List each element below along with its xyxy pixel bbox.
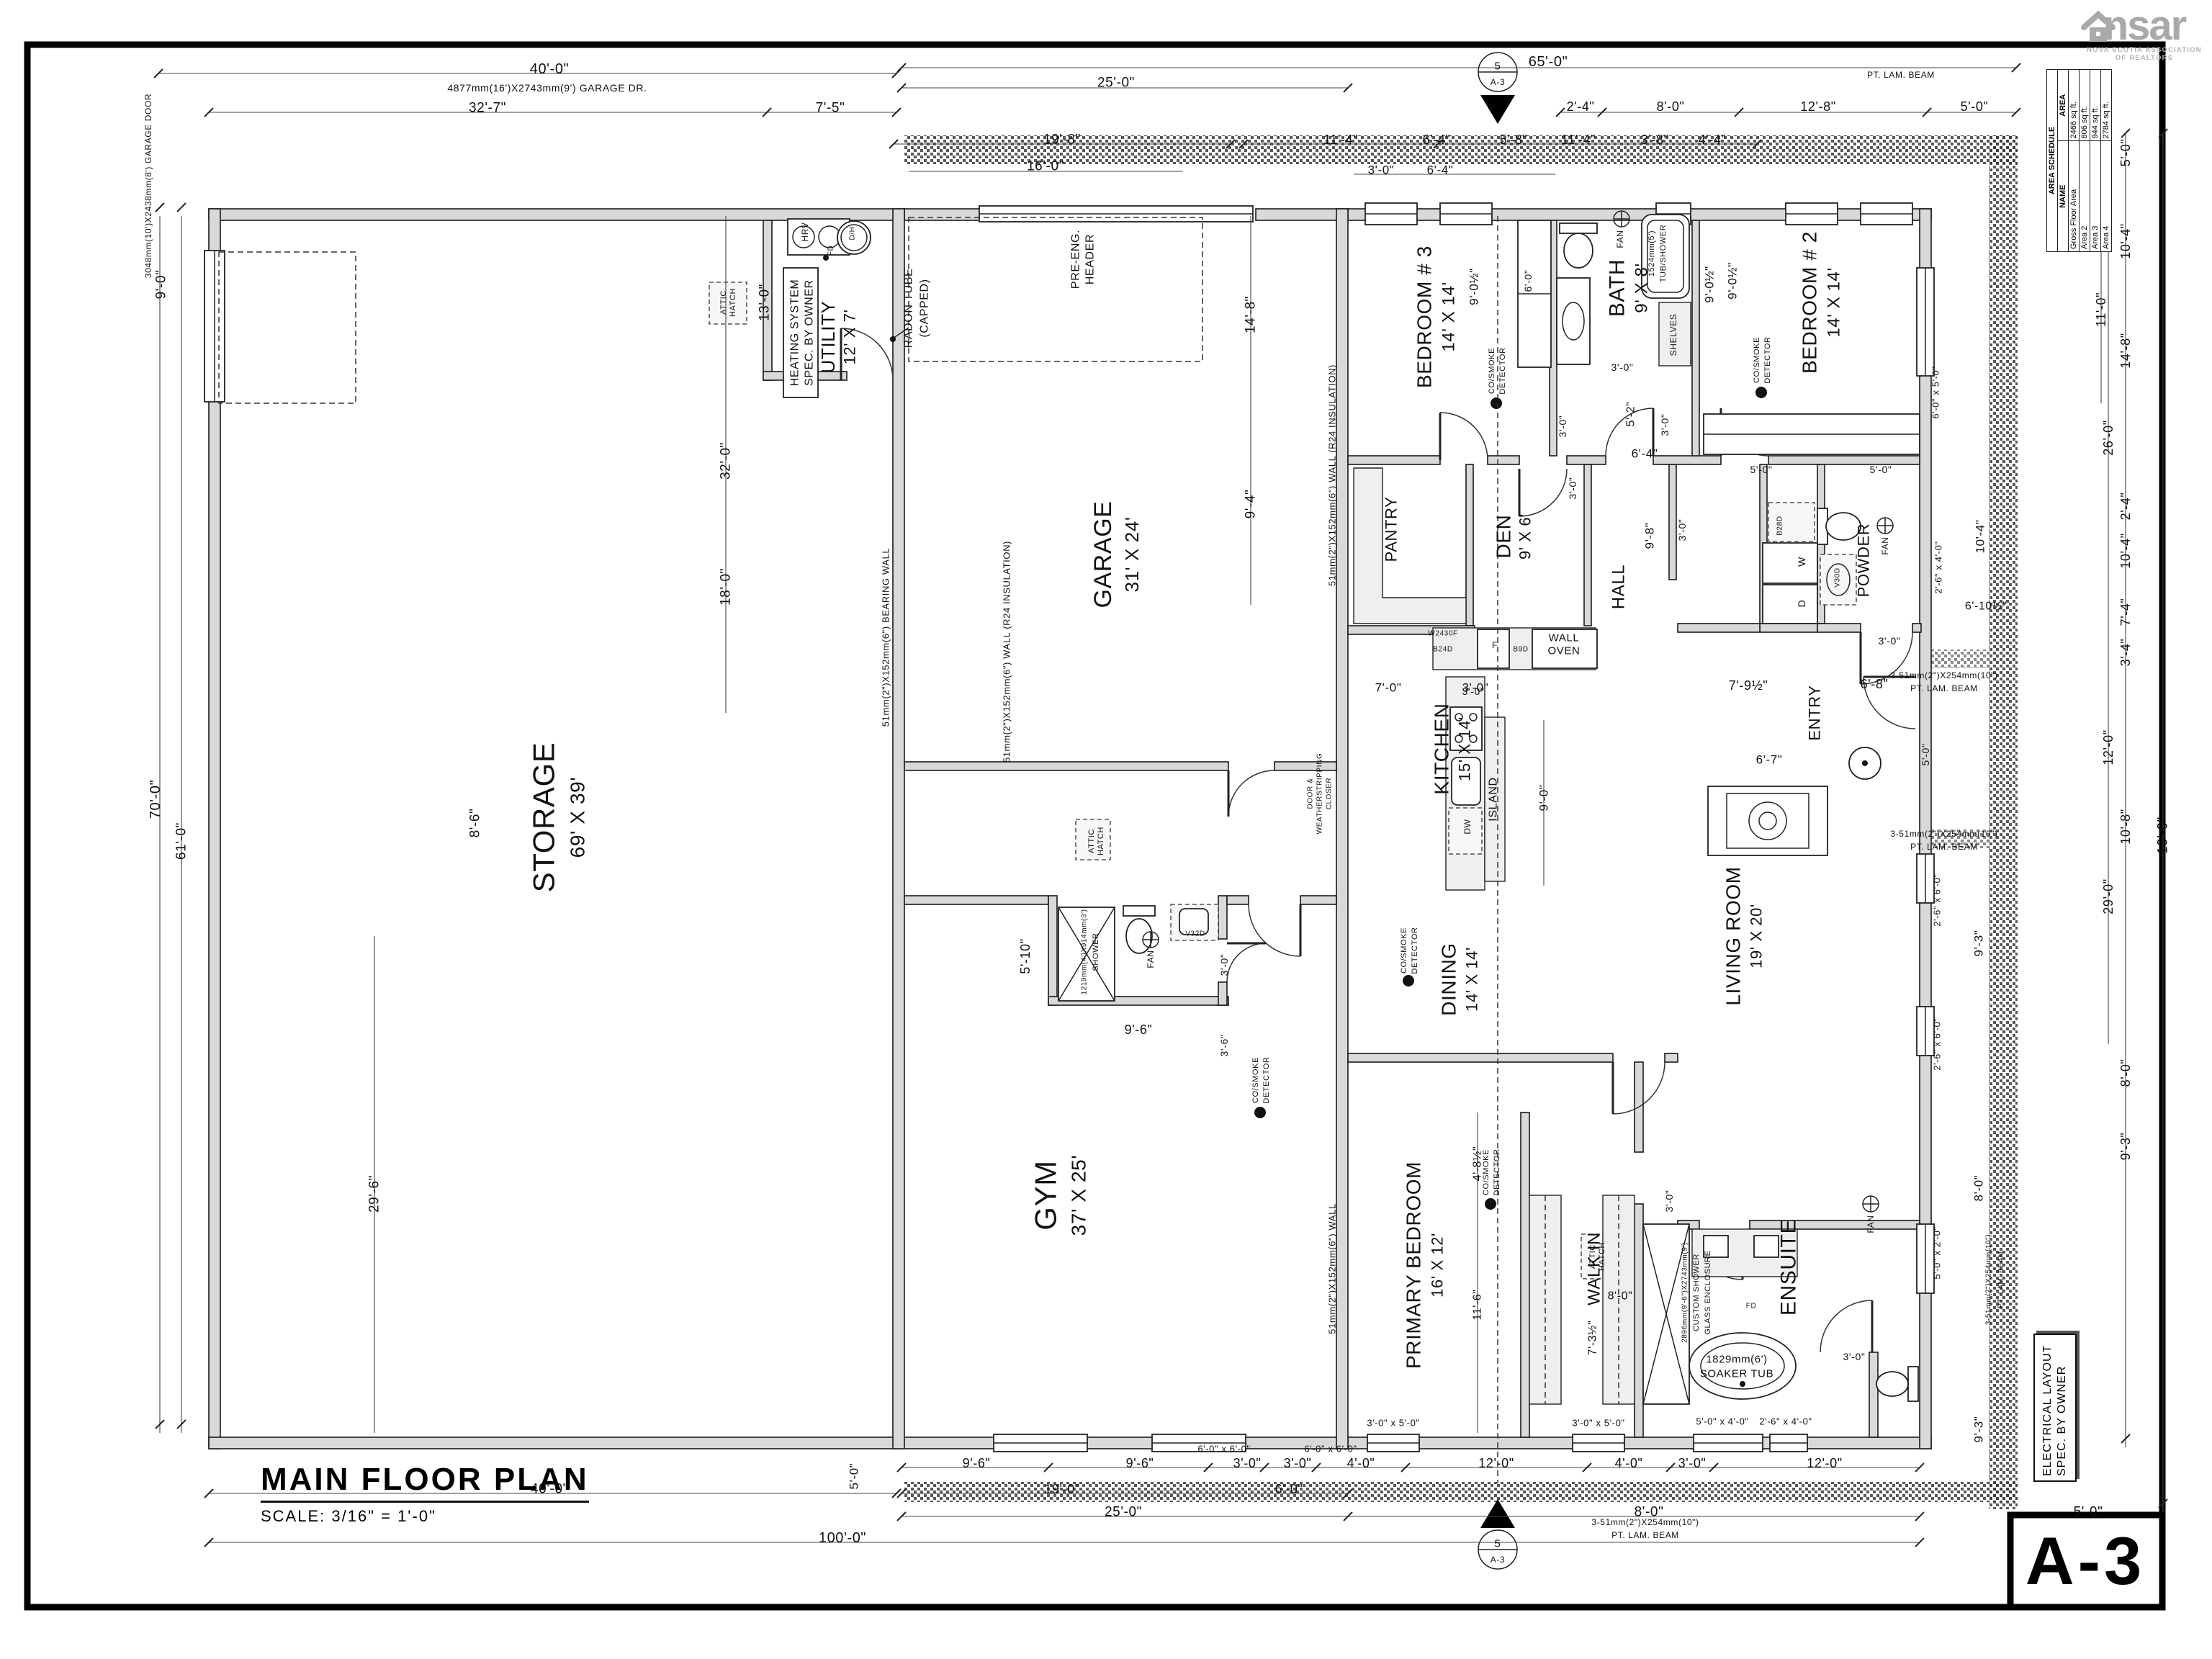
note-beam-e3b: PT. LAM. BEAM bbox=[1997, 1251, 2005, 1308]
plan-text-layer: STORAGE69' X 39'GYM37' X 25'GARAGE31' X … bbox=[143, 54, 2171, 1565]
dim: 13'-0" bbox=[757, 284, 773, 321]
room-kitchen: KITCHEN bbox=[1431, 703, 1453, 794]
note-walloven-2: OVEN bbox=[1548, 645, 1581, 657]
room-gym-size: 37' X 25' bbox=[1068, 1155, 1090, 1236]
note-beam-e3a: 3-51mm(2")X254mm(10") bbox=[1985, 1234, 1993, 1325]
dim: 6'-0" x 6'-0" bbox=[1197, 1444, 1250, 1455]
dim: 3'-0" bbox=[1678, 1456, 1707, 1470]
room-primary: PRIMARY BEDROOM bbox=[1403, 1161, 1425, 1369]
dim: 5'-0" bbox=[848, 1463, 861, 1490]
note-tubshower-2: TUB/SHOWER bbox=[1659, 225, 1668, 283]
pantry-counter bbox=[1354, 468, 1466, 624]
note-wall-r24-a: 51mm(2")X152mm(6") WALL (R24 INSULATION) bbox=[1002, 541, 1012, 763]
dim: 3'-6" bbox=[1218, 1035, 1230, 1057]
room-ensuite: ENSUITE bbox=[1777, 1219, 1801, 1316]
dim: 25'-0" bbox=[1097, 76, 1135, 91]
room-den: DEN bbox=[1493, 515, 1515, 559]
room-garage-size: 31' X 24' bbox=[1121, 517, 1143, 593]
logo-caption-2: OF REALTORS bbox=[2116, 54, 2173, 62]
note-washer: W bbox=[1796, 557, 1807, 567]
dim: 10'-4" bbox=[1974, 520, 1987, 554]
note-walloven-1: WALL bbox=[1549, 632, 1580, 644]
dim: 9'-0½" bbox=[1726, 262, 1740, 300]
dim: 7'-0" bbox=[1375, 681, 1402, 695]
dim: 2'-4" bbox=[2118, 493, 2133, 521]
dim: 29'-6" bbox=[367, 1175, 382, 1213]
note-garage-door: 4877mm(16')X2743mm(9') GARAGE DR. bbox=[447, 82, 647, 94]
room-bedroom2-size: 14' X 14' bbox=[1825, 267, 1844, 337]
dim: 3'-8" bbox=[1641, 132, 1669, 147]
note-dh: D/H bbox=[849, 226, 857, 240]
room-gym: GYM bbox=[1029, 1160, 1063, 1230]
gym-toilet bbox=[1123, 906, 1155, 916]
media-unit bbox=[1708, 786, 1827, 855]
logo-caption-1: NOVA SCOTIA ASSOCIATION bbox=[2087, 46, 2202, 54]
area-schedule-column: AREA bbox=[2058, 70, 2069, 141]
bath-toilet bbox=[1560, 223, 1597, 233]
note-co-gym-2: DETECTOR bbox=[1262, 1056, 1271, 1103]
dim: 3'-0" bbox=[1843, 1351, 1866, 1362]
dim: 5'-0" x 4'-0" bbox=[1696, 1416, 1748, 1427]
dim: 3'-0" x 5'-0" bbox=[1367, 1418, 1419, 1429]
dim: 6'-4" bbox=[1427, 163, 1454, 177]
dim: 6'-0" bbox=[1522, 270, 1534, 292]
note-attic-storage-1: ATTIC bbox=[719, 290, 728, 315]
dim: 5'-0" x 2'-0" bbox=[1932, 1226, 1943, 1279]
note-door-weather-2: WEATHERSTRIPPING bbox=[1316, 753, 1324, 835]
note-co-bed2-1: CO/SMOKE bbox=[1753, 337, 1761, 383]
title-block: MAIN FLOOR PLAN SCALE: 3/16" = 1'-0" bbox=[261, 1462, 589, 1526]
note-bearing-wall: 51mm(2")X152mm(6") BEARING WALL bbox=[881, 548, 891, 727]
dim: 5'-2" bbox=[1625, 402, 1637, 427]
note-radon-1: RADON TUBE bbox=[903, 269, 915, 349]
note-co-bed3-1: CO/SMOKE bbox=[1488, 348, 1496, 394]
note-gym-shower-1: 1219mm(4')X914mm(3') bbox=[1081, 909, 1089, 994]
sheet-number: A-3 bbox=[2010, 1518, 2160, 1604]
dim: 6'-10½" bbox=[1965, 601, 2007, 613]
note-co-bed3-2: DETECTOR bbox=[1498, 347, 1507, 394]
dim: 11'-6" bbox=[1472, 1289, 1484, 1320]
area-schedule-title: AREA SCHEDULE bbox=[2047, 70, 2058, 252]
room-island: ISLAND bbox=[1488, 777, 1500, 821]
logo-text-right: ar bbox=[2149, 9, 2185, 43]
note-wall-r24-b: 51mm(2")X152mm(6") WALL (R24 INSULATION) bbox=[1327, 364, 1338, 586]
dim: 65'-0" bbox=[1529, 54, 1568, 70]
dim: 9'-3" bbox=[1972, 1416, 1986, 1443]
dim: 8'-0" bbox=[1657, 99, 1685, 114]
dim: 9'-6" bbox=[963, 1456, 991, 1470]
dim: 26'-0" bbox=[2101, 420, 2116, 455]
note-co-bed2-2: DETECTOR bbox=[1763, 336, 1772, 383]
note-beam-s1b: PT. LAM. BEAM bbox=[1611, 1530, 1679, 1540]
dim: 5'-0" bbox=[2118, 139, 2133, 167]
note-attic-walkin-1: ATTIC bbox=[1588, 1244, 1597, 1269]
dim: 3'-0" bbox=[1218, 954, 1230, 976]
electrical-note: ELECTRICAL LAYOUT SPEC. BY OWNER bbox=[2033, 1334, 2080, 1482]
room-storage: STORAGE bbox=[527, 742, 561, 893]
dim: 5'-8" bbox=[1500, 132, 1528, 147]
note-beam-e2b: PT. LAM. BEAM bbox=[1910, 842, 1978, 852]
note-shower-glass-2: CUSTOM SHOWER bbox=[1692, 1254, 1701, 1331]
note-cab-b24d: B24D bbox=[1433, 646, 1452, 654]
dim: 100'-0" bbox=[819, 1530, 866, 1546]
dim: 6'-0" bbox=[1275, 1482, 1303, 1496]
note-fan-powder: FAN bbox=[1880, 536, 1890, 554]
dim: 5'-0" bbox=[1961, 99, 1989, 114]
note-beam-top: PT. LAM. BEAM bbox=[1867, 70, 1935, 80]
note-fd-utility: FD bbox=[827, 246, 835, 256]
note-cab-w2430: W2430F bbox=[1428, 630, 1457, 638]
note-soaker-2: SOAKER TUB bbox=[1700, 1368, 1773, 1380]
dim: 4'-0" bbox=[1615, 1456, 1643, 1470]
note-preeng-2: HEADER bbox=[1084, 234, 1097, 284]
dim: 4'-4" bbox=[1699, 132, 1727, 147]
dim: 4'-0" bbox=[1347, 1456, 1375, 1470]
dim: 2'-6" x 6'-0" bbox=[1932, 1017, 1943, 1070]
note-gym-shower-2: SHOWER bbox=[1092, 932, 1100, 971]
dim: 32'-7" bbox=[469, 101, 506, 116]
dim: 8'-6" bbox=[468, 809, 483, 838]
marker-bot-num: 5 bbox=[1495, 1538, 1501, 1550]
dim: 6'-0" x 6'-0" bbox=[1304, 1444, 1357, 1455]
dim: 10'-4" bbox=[2118, 533, 2133, 568]
room-living-size: 19' X 20' bbox=[1748, 904, 1766, 968]
dim: 3'-0" bbox=[1557, 415, 1568, 438]
dim: 3'-0" bbox=[1659, 414, 1671, 436]
note-co-gym-1: CO/SMOKE bbox=[1251, 1057, 1260, 1103]
dim: 10'-4" bbox=[2118, 223, 2133, 258]
note-hrv: HRV bbox=[800, 222, 810, 242]
dim: 8'-0" bbox=[1608, 1290, 1633, 1303]
west-garage-door-zone bbox=[219, 252, 356, 403]
dim: 5'-0" bbox=[1920, 744, 1931, 766]
area-schedule-cell: 806 sq ft. bbox=[2080, 70, 2090, 141]
nsar-logo: ns ar NOVA SCOTIA ASSOCIATION OF REALTOR… bbox=[2080, 9, 2209, 62]
area-schedule-cell: 944 sq ft. bbox=[2090, 70, 2101, 141]
dim: 7'-4" bbox=[2118, 598, 2133, 626]
area-schedule: AREA SCHEDULENAMEAREAGross Floor Area246… bbox=[2046, 69, 2116, 253]
note-fridge: F bbox=[1492, 640, 1498, 650]
note-heating-1: HEATING SYSTEM bbox=[789, 279, 801, 387]
dim: 9'-3" bbox=[1972, 930, 1986, 957]
dim: 12'-8" bbox=[1800, 99, 1835, 114]
pre-eng-header-zone bbox=[909, 217, 1202, 361]
drawing-sheet: { "sheet": { "title": "MAIN FLOOR PLAN",… bbox=[0, 0, 2212, 1659]
area-schedule-cell: Area 3 bbox=[2090, 141, 2101, 252]
dim: 7'-3½" bbox=[1587, 1321, 1599, 1356]
note-preeng-1: PRE-ENG. bbox=[1070, 230, 1082, 289]
note-beam-e1b: PT. LAM. BEAM bbox=[1910, 683, 1978, 693]
dim: 3'-0" x 5'-0" bbox=[1572, 1418, 1624, 1429]
dim: 3'-4" bbox=[2118, 639, 2133, 667]
room-hall: HALL bbox=[1609, 565, 1629, 609]
dim: 11'-0" bbox=[2094, 292, 2108, 327]
dim: 6'-4" bbox=[1632, 447, 1658, 461]
marker-top-sheet: A-3 bbox=[1491, 77, 1505, 87]
dim: 7'-9½" bbox=[1729, 678, 1768, 693]
dim: 10'-0" bbox=[2156, 817, 2171, 854]
dim: 3'-0" bbox=[1233, 1456, 1262, 1470]
area-schedule-cell: Area 4 bbox=[2101, 141, 2112, 252]
dim: 3'-0" bbox=[1663, 1190, 1675, 1213]
dim: 12'-0" bbox=[1478, 1456, 1514, 1470]
dim: 9'-8" bbox=[1643, 523, 1657, 549]
dim: 3'-0" bbox=[1368, 163, 1395, 177]
house-icon bbox=[2080, 9, 2117, 46]
dim: 14'-8" bbox=[2118, 333, 2133, 368]
room-utility: UTILITY bbox=[817, 301, 839, 374]
note-beam-e2a: 3-51mm(2")X254mm(10") bbox=[1890, 829, 1997, 839]
room-bedroom2: BEDROOM # 2 bbox=[1799, 231, 1821, 374]
room-bedroom3-size: 14' X 14' bbox=[1439, 282, 1459, 351]
dim: 25'-0" bbox=[1105, 1505, 1142, 1520]
dim: 3'-0" bbox=[1462, 685, 1485, 697]
note-tubshower-1: 1524mm(5') bbox=[1647, 230, 1656, 276]
note-attic-gym-2: HATCH bbox=[1097, 827, 1105, 855]
area-schedule-row: Area 3944 sq ft. bbox=[2090, 70, 2101, 252]
note-shower-glass-1: 2896mm(9'-6")X2743mm(9') bbox=[1681, 1242, 1689, 1343]
note-radon-2: (CAPPED) bbox=[919, 279, 931, 337]
dim: 19'-0" bbox=[1044, 1482, 1079, 1496]
note-fan-ensuite: FAN bbox=[1866, 1215, 1876, 1233]
room-kitchen-size: 15' X 14' bbox=[1456, 716, 1474, 781]
dim: 9'-6" bbox=[1125, 1022, 1153, 1037]
dim: 19'-8" bbox=[1043, 132, 1081, 148]
dim: 14'-8" bbox=[1244, 296, 1259, 333]
dim: 16'-0" bbox=[1027, 159, 1064, 174]
dim: 61'-0" bbox=[174, 822, 189, 860]
dim: 5'-0" bbox=[1870, 464, 1892, 475]
dim: 8'-0" bbox=[2118, 1059, 2133, 1087]
attic-hatch-storage bbox=[709, 282, 747, 324]
dim: 2'-6" x 4'-0" bbox=[1759, 1416, 1812, 1427]
note-co-dining-1: CO/SMOKE bbox=[1400, 927, 1408, 974]
floor-plan-canvas: STORAGE69' X 39'GYM37' X 25'GARAGE31' X … bbox=[0, 0, 2212, 1659]
dim: 12'-0" bbox=[2101, 729, 2116, 765]
marker-bot-sheet: A-3 bbox=[1491, 1555, 1505, 1565]
area-schedule-cell: Gross Floor Area bbox=[2069, 141, 2080, 252]
dim: 3'-0" bbox=[1611, 361, 1634, 373]
note-fan-bath: FAN bbox=[1615, 230, 1625, 248]
plan-title: MAIN FLOOR PLAN bbox=[261, 1462, 589, 1503]
dim: 11'-4" bbox=[1323, 132, 1358, 147]
dim: 9'-4" bbox=[1244, 490, 1259, 519]
dim: 8'-0" bbox=[1635, 1505, 1664, 1520]
room-storage-size: 69' X 39' bbox=[567, 777, 589, 858]
dim: 9'-6" bbox=[1126, 1456, 1154, 1470]
dim: 2'-6" x 6'-0" bbox=[1932, 873, 1943, 926]
area-schedule-column: NAME bbox=[2058, 141, 2069, 252]
plan-scale: SCALE: 3/16" = 1'-0" bbox=[261, 1507, 589, 1526]
note-beam-e1a: 3-51mm(2")X254mm(10") bbox=[1890, 670, 1997, 680]
note-door-weather-3: CLOSER bbox=[1326, 778, 1334, 810]
dim: 3'-0" bbox=[1567, 477, 1578, 500]
room-bedroom3: BEDROOM # 3 bbox=[1413, 246, 1436, 388]
dim: 5'-0" bbox=[1750, 464, 1773, 475]
note-fd-ensuite: FD bbox=[1746, 1303, 1757, 1310]
electrical-note-line2: SPEC. BY OWNER bbox=[2055, 1335, 2069, 1476]
dim: 6'-4" bbox=[1423, 132, 1451, 147]
room-bath: BATH bbox=[1606, 259, 1629, 317]
area-schedule-row: Area 2806 sq ft. bbox=[2080, 70, 2090, 252]
bath-vanity bbox=[1557, 278, 1590, 364]
note-attic-walkin-2: HATCH bbox=[1598, 1242, 1606, 1271]
dim: 9'-0" bbox=[1537, 785, 1551, 811]
room-utility-size: 12' X 7' bbox=[841, 310, 859, 365]
washer bbox=[1763, 543, 1817, 583]
area-schedule-cell: Area 2 bbox=[2080, 141, 2090, 252]
dryer bbox=[1763, 585, 1817, 624]
room-primary-size: 16' X 12' bbox=[1429, 1233, 1447, 1298]
room-garage: GARAGE bbox=[1089, 500, 1117, 608]
note-cab-b9d: B9D bbox=[1513, 646, 1528, 654]
dim: 8'-0" bbox=[1972, 1175, 1986, 1202]
room-powder: POWDER bbox=[1855, 523, 1873, 598]
room-pantry: PANTRY bbox=[1382, 497, 1401, 562]
note-wall-plain: 51mm(2")X152mm(6") WALL bbox=[1327, 1203, 1338, 1334]
note-cab-b28d: B28D bbox=[1776, 516, 1784, 535]
dim: 40'-0" bbox=[530, 61, 570, 77]
dim: 6'-8" bbox=[1861, 677, 1889, 691]
wc-toilet bbox=[1908, 1367, 1918, 1401]
dim: 4'-8½" bbox=[1472, 1146, 1484, 1182]
note-attic-storage-2: HATCH bbox=[729, 288, 737, 317]
dim: 2'-4" bbox=[1567, 99, 1595, 114]
note-heating-2: SPEC. BY OWNER bbox=[804, 279, 816, 386]
dim: 12'-0" bbox=[1807, 1456, 1842, 1470]
dim: 32'-0" bbox=[719, 442, 734, 480]
dim: 3'-0" bbox=[1879, 635, 1901, 647]
dim: 18'-0" bbox=[719, 568, 734, 606]
room-dining: DINING bbox=[1438, 943, 1460, 1016]
note-v30d: V30D bbox=[1834, 567, 1842, 587]
dim: 29'-0" bbox=[2101, 878, 2116, 914]
area-schedule-row: Area 42784 sq ft. bbox=[2101, 70, 2112, 252]
note-west-garage-door: 3048mm(10')X2438mm(8') GARAGE DOOR bbox=[143, 94, 153, 278]
dim: 6'-0" x 5'-0" bbox=[1930, 366, 1941, 418]
dimension-lines bbox=[154, 63, 2167, 1547]
note-dw: DW bbox=[1462, 819, 1473, 834]
note-co-primary-2: DETECTOR bbox=[1493, 1148, 1501, 1195]
note-attic-gym-1: ATTIC bbox=[1087, 829, 1096, 853]
dim: 5'-10" bbox=[1018, 938, 1033, 974]
electrical-note-line1: ELECTRICAL LAYOUT bbox=[2041, 1335, 2055, 1476]
area-schedule-cell: 2784 sq ft. bbox=[2101, 70, 2112, 141]
note-fan-gymbath: FAN bbox=[1146, 950, 1156, 968]
dim: 11'-4" bbox=[1561, 132, 1596, 147]
room-living: LIVING ROOM bbox=[1722, 866, 1745, 1005]
dim: 70'-0" bbox=[148, 780, 163, 819]
dim: 9'-3" bbox=[2118, 1133, 2133, 1161]
dim: 6'-7" bbox=[1756, 753, 1783, 767]
dim: 9'-0" bbox=[154, 270, 169, 300]
note-shower-glass-3: GLASS ENCLOSURE bbox=[1704, 1250, 1712, 1334]
dim: 3'-0" bbox=[1676, 519, 1688, 541]
note-door-weather-1: DOOR & bbox=[1307, 778, 1315, 809]
marker-top-num: 5 bbox=[1495, 60, 1501, 73]
dim: 9'-0½" bbox=[1703, 266, 1717, 303]
dim: 7'-5" bbox=[816, 101, 845, 116]
note-dryer: D bbox=[1796, 600, 1807, 608]
dim: 10'-8" bbox=[2118, 809, 2133, 844]
room-dining-size: 14' X 14' bbox=[1463, 947, 1481, 1012]
dim: 2'-6" x 4'-0" bbox=[1933, 541, 1944, 593]
area-schedule-cell: 2466 sq ft. bbox=[2069, 70, 2080, 141]
note-v32d: V32D bbox=[1185, 930, 1205, 938]
dim: 9'-0½" bbox=[1467, 268, 1481, 305]
dim: 3'-0" bbox=[1284, 1456, 1312, 1470]
room-den-size: 9' X 6' bbox=[1516, 513, 1534, 559]
room-entry: ENTRY bbox=[1806, 685, 1824, 740]
note-shelves: SHELVES bbox=[1668, 314, 1678, 356]
note-soaker-1: 1829mm(6') bbox=[1706, 1354, 1768, 1366]
note-co-dining-2: DETECTOR bbox=[1411, 927, 1419, 974]
area-schedule-row: Gross Floor Area2466 sq ft. bbox=[2069, 70, 2080, 252]
